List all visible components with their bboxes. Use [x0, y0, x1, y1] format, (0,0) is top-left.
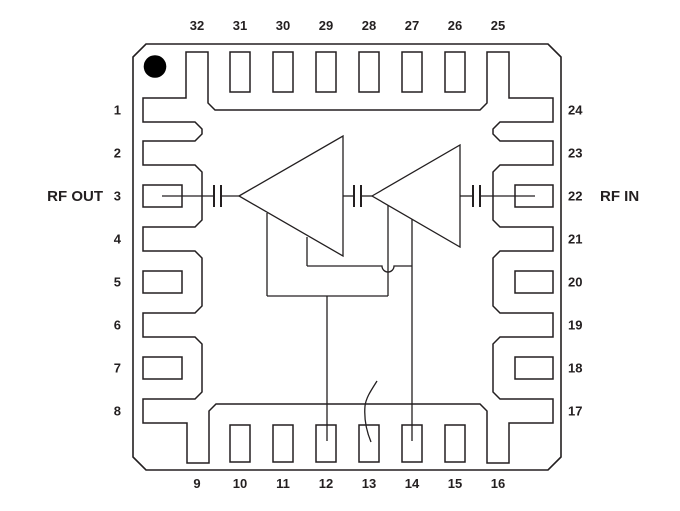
pin-label-31: 31: [233, 18, 247, 33]
pad-pin-15: [445, 425, 465, 462]
amplifier-1: [239, 136, 343, 256]
pin-label-27: 27: [405, 18, 419, 33]
capacitor-2: [354, 185, 361, 207]
pin-label-25: 25: [491, 18, 505, 33]
interstage-bias-line-with-wire-hop: [307, 266, 412, 272]
pin-label-22: 22: [568, 189, 582, 204]
pin-label-8: 8: [114, 404, 121, 419]
pad-pin-30: [273, 52, 293, 92]
pin-label-9: 9: [193, 476, 200, 491]
pin-label-17: 17: [568, 404, 582, 419]
pin-label-28: 28: [362, 18, 376, 33]
rf-out-label: RF OUT: [47, 188, 103, 205]
pin-label-11: 11: [276, 476, 290, 491]
pin-label-13: 13: [362, 476, 376, 491]
pin-label-24: 24: [568, 103, 583, 118]
pin-label-19: 19: [568, 318, 582, 333]
pad-pin-13: [359, 425, 379, 462]
pad-pin-5: [143, 271, 182, 293]
pad-pin-29: [316, 52, 336, 92]
pad-pin-26: [445, 52, 465, 92]
pin-label-29: 29: [319, 18, 333, 33]
package-outline: [133, 44, 561, 470]
ic-package-drawing: 3231302928272625910111213141516123456782…: [0, 0, 680, 511]
pin-label-15: 15: [448, 476, 462, 491]
pin-label-6: 6: [114, 318, 121, 333]
pin-label-2: 2: [114, 146, 121, 161]
pin13-ground-bond-curve: [365, 381, 377, 442]
pin-label-7: 7: [114, 361, 121, 376]
pin-label-10: 10: [233, 476, 247, 491]
pin-label-20: 20: [568, 275, 582, 290]
pad-pin-28: [359, 52, 379, 92]
pin-label-23: 23: [568, 146, 582, 161]
pin-label-16: 16: [491, 476, 505, 491]
pin-label-12: 12: [319, 476, 333, 491]
rf-in-label: RF IN: [600, 188, 639, 205]
amplifier-2: [372, 145, 460, 247]
pad-pin-10: [230, 425, 250, 462]
pin-label-3: 3: [114, 189, 121, 204]
pin1-indicator-dot: [144, 55, 167, 78]
pad-pin-31: [230, 52, 250, 92]
pad-pin-12: [316, 425, 336, 462]
pin-label-30: 30: [276, 18, 290, 33]
capacitor-3: [473, 185, 480, 207]
pad-pin-20: [515, 271, 553, 293]
bias-network: [267, 205, 412, 442]
signal-pads: [143, 52, 553, 462]
pad-pin-7: [143, 357, 182, 379]
ground-paddle-outline: [143, 52, 553, 463]
pad-pin-18: [515, 357, 553, 379]
capacitor-1: [214, 185, 221, 207]
pin-label-21: 21: [568, 232, 582, 247]
qfn-pinout-diagram: 3231302928272625910111213141516123456782…: [0, 0, 680, 511]
pad-pin-27: [402, 52, 422, 92]
pin-number-labels: 3231302928272625910111213141516123456782…: [114, 18, 583, 491]
pin-label-1: 1: [114, 103, 121, 118]
pin-label-5: 5: [114, 275, 121, 290]
pin-label-18: 18: [568, 361, 582, 376]
pin-label-26: 26: [448, 18, 462, 33]
pin-label-32: 32: [190, 18, 204, 33]
pad-pin-11: [273, 425, 293, 462]
pin-label-14: 14: [405, 476, 420, 491]
pin-label-4: 4: [114, 232, 122, 247]
